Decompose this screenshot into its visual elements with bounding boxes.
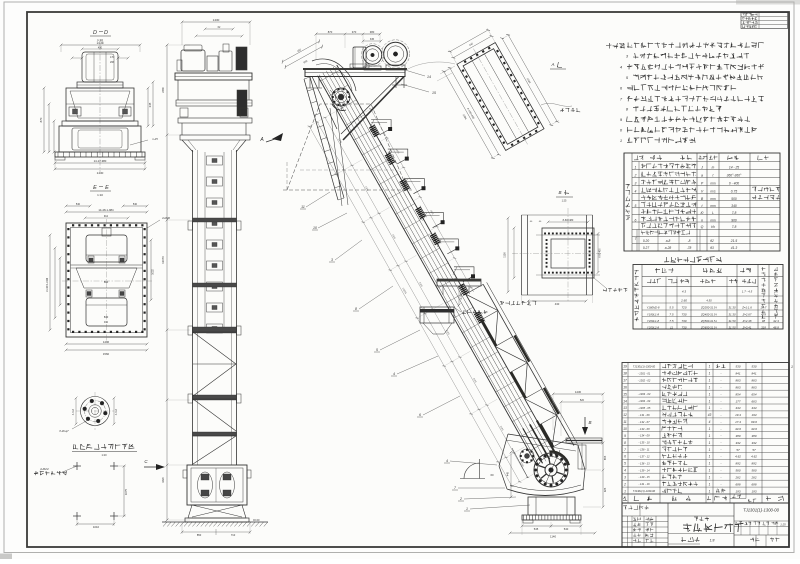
- svg-text:15: 15: [432, 91, 436, 95]
- svg-text:1: 1: [709, 441, 711, 445]
- svg-text:- 1305 - 05: - 1305 - 05: [638, 406, 651, 410]
- svg-text:- 135 - 10: - 135 - 10: [638, 441, 650, 445]
- svg-text:2.6: 2.6: [773, 306, 778, 310]
- svg-text:360°-360°: 360°-360°: [727, 174, 742, 178]
- svg-text:430: 430: [98, 47, 103, 50]
- svg-text:mm: mm: [710, 219, 716, 223]
- svg-text:1.7 - 4.5: 1.7 - 4.5: [742, 290, 753, 294]
- svg-text:-8: -8: [688, 239, 691, 243]
- svg-text:730: 730: [681, 319, 686, 323]
- svg-text:31.50: 31.50: [729, 325, 736, 329]
- svg-text:57: 57: [752, 448, 756, 452]
- svg-text:3.4: 3.4: [774, 313, 778, 317]
- svg-text:540: 540: [76, 203, 81, 206]
- svg-text:19.4: 19.4: [735, 413, 741, 417]
- svg-text:14: 14: [623, 399, 627, 403]
- svg-text:730: 730: [681, 325, 686, 329]
- svg-text:θ3: θ3: [710, 246, 714, 250]
- svg-text:4-414: 4-414: [115, 408, 118, 415]
- svg-text:10: 10: [623, 427, 627, 431]
- svg-text:840: 840: [104, 315, 109, 319]
- svg-text:- 1304 - 04: - 1304 - 04: [638, 399, 651, 403]
- svg-text:J: J: [700, 166, 703, 170]
- svg-text:E: E: [93, 185, 97, 191]
- svg-text:1560: 1560: [103, 352, 110, 356]
- svg-text:- 137 - 12: - 137 - 12: [638, 455, 650, 459]
- svg-text:t: t: [713, 174, 714, 178]
- svg-text:1430: 1430: [575, 390, 582, 394]
- svg-text:4-414: 4-414: [72, 408, 75, 415]
- svg-text:4-M20: 4-M20: [162, 216, 170, 220]
- svg-text:2390: 2390: [162, 87, 165, 93]
- svg-text:4: 4: [624, 469, 626, 473]
- svg-text:854: 854: [735, 392, 740, 396]
- svg-text:7: 7: [635, 237, 637, 241]
- svg-text:1:8: 1:8: [710, 539, 715, 543]
- svg-text:A: A: [259, 137, 264, 143]
- svg-text:19: 19: [623, 365, 627, 369]
- svg-text:434: 434: [735, 406, 740, 410]
- svg-text:- 131 - 06: - 131 - 06: [638, 413, 650, 417]
- svg-text:193: 193: [735, 489, 740, 493]
- svg-text:5.5: 5.5: [669, 306, 674, 310]
- svg-text:6: 6: [419, 413, 421, 417]
- svg-text:170: 170: [110, 56, 115, 59]
- svg-text:8-60=480: 8-60=480: [563, 219, 574, 222]
- svg-text:1150: 1150: [503, 252, 507, 258]
- svg-text:688: 688: [735, 482, 740, 486]
- svg-text:8: 8: [624, 441, 626, 445]
- svg-text:870: 870: [39, 117, 43, 122]
- svg-text:31.50: 31.50: [729, 319, 736, 323]
- svg-text:1: 1: [709, 392, 711, 396]
- svg-text:1140: 1140: [550, 535, 556, 539]
- svg-text:0.27: 0.27: [643, 246, 649, 250]
- svg-text:1620: 1620: [162, 477, 165, 483]
- svg-text:11: 11: [301, 205, 305, 209]
- svg-text:ZQ500-31.5-I: ZQ500-31.5-I: [700, 319, 717, 323]
- svg-text:6-80-400: 6-80-400: [600, 248, 602, 258]
- svg-text:31.30: 31.30: [729, 313, 736, 317]
- svg-text:5: 5: [635, 204, 637, 208]
- svg-text:4.50: 4.50: [706, 299, 712, 303]
- svg-text:688: 688: [751, 482, 756, 486]
- svg-text:- 134 - 09: - 134 - 09: [638, 434, 650, 438]
- svg-text:2.5: 2.5: [773, 290, 778, 294]
- svg-text:9: 9: [624, 434, 626, 438]
- svg-text:57: 57: [736, 448, 740, 452]
- svg-text:863: 863: [751, 386, 756, 390]
- svg-text:Z=3.41: Z=3.41: [742, 325, 752, 329]
- svg-text:1:10: 1:10: [97, 193, 103, 197]
- svg-text:655: 655: [603, 455, 607, 460]
- svg-text:2: 2: [623, 482, 626, 486]
- svg-text:D: D: [104, 30, 108, 36]
- svg-text:Y200L1-8: Y200L1-8: [647, 319, 660, 323]
- svg-text:540: 540: [133, 203, 138, 206]
- svg-text:n: n: [701, 219, 703, 223]
- svg-text:2: 2: [634, 174, 637, 178]
- svg-text:1010: 1010: [93, 525, 100, 529]
- svg-text:ZQ650-31.5-I: ZQ650-31.5-I: [700, 325, 717, 329]
- svg-text:7.8: 7.8: [732, 225, 737, 229]
- svg-text:14: 14: [427, 75, 431, 79]
- svg-text:A: A: [550, 62, 554, 67]
- svg-text:890: 890: [104, 280, 109, 284]
- svg-text:1: 1: [709, 469, 711, 473]
- svg-text:- 132 - 07: - 132 - 07: [638, 420, 650, 424]
- svg-text:a: a: [701, 174, 703, 178]
- svg-text:60: 60: [490, 473, 494, 477]
- svg-text:7.5: 7.5: [669, 313, 674, 317]
- svg-text:1:20: 1:20: [101, 453, 107, 457]
- svg-text:8-26-φ7: 8-26-φ7: [59, 429, 69, 433]
- svg-text:ZQ350-31.5-I: ZQ350-31.5-I: [700, 306, 717, 310]
- svg-text:- 138 - 13: - 138 - 13: [638, 461, 650, 465]
- svg-text:345: 345: [370, 38, 375, 41]
- svg-text:1430: 1430: [97, 171, 104, 175]
- svg-text:1: 1: [709, 455, 711, 459]
- svg-text:10: 10: [313, 226, 317, 230]
- svg-text:4-1200: 4-1200: [461, 292, 463, 300]
- svg-text:42.3: 42.3: [773, 319, 779, 323]
- svg-text:1496: 1496: [103, 340, 110, 344]
- svg-text:m: m: [712, 166, 715, 170]
- svg-text:1: 1: [709, 482, 711, 486]
- svg-text:193: 193: [751, 489, 756, 493]
- svg-text:- 1302 - 02: - 1302 - 02: [638, 378, 651, 382]
- svg-text:Z=2.48: Z=2.48: [742, 319, 752, 323]
- svg-text:5: 5: [624, 462, 626, 466]
- svg-text:Z=2.67: Z=2.67: [742, 313, 752, 317]
- svg-text:1: 1: [620, 138, 622, 143]
- svg-text:a-8: a-8: [666, 239, 671, 243]
- svg-text:17.4: 17.4: [735, 420, 741, 424]
- svg-text:318: 318: [761, 325, 766, 329]
- svg-text:194: 194: [751, 413, 756, 417]
- svg-text:12: 12: [623, 413, 627, 417]
- svg-text:14 - 25: 14 - 25: [729, 166, 739, 170]
- svg-text:4-M24: 4-M24: [40, 467, 49, 471]
- svg-text:1032: 1032: [152, 269, 155, 275]
- svg-text:Z=1:1.6: Z=1:1.6: [741, 306, 752, 310]
- svg-text:6: 6: [624, 455, 626, 459]
- svg-text:1: 1: [709, 475, 711, 479]
- svg-text:332: 332: [751, 441, 756, 445]
- svg-text:mm: mm: [710, 204, 716, 208]
- svg-text:663: 663: [751, 399, 756, 403]
- svg-text:41.3: 41.3: [731, 246, 738, 250]
- svg-text:1: 1: [709, 406, 711, 410]
- svg-text:710: 710: [231, 533, 236, 537]
- svg-text:445: 445: [507, 471, 510, 476]
- svg-text:870: 870: [328, 30, 333, 34]
- svg-text:- 139 - 14: - 139 - 14: [638, 468, 650, 472]
- svg-text:262: 262: [750, 475, 756, 479]
- svg-text:892: 892: [751, 462, 756, 466]
- svg-text:4: 4: [635, 190, 637, 194]
- svg-text:925: 925: [603, 487, 607, 492]
- svg-text:1: 1: [635, 166, 637, 170]
- svg-text:D: D: [93, 30, 97, 36]
- svg-text:530: 530: [751, 365, 756, 369]
- svg-text:863: 863: [735, 379, 740, 383]
- svg-text:479: 479: [761, 313, 766, 317]
- svg-text:380: 380: [370, 30, 375, 34]
- svg-text:L: L: [712, 211, 714, 215]
- svg-text:43.6: 43.6: [735, 427, 741, 431]
- svg-text:841: 841: [751, 372, 756, 376]
- svg-text:1:25: 1:25: [780, 522, 786, 526]
- svg-text:3: 3: [635, 182, 637, 186]
- svg-text:14-48.5-1038: 14-48.5-1038: [46, 277, 49, 292]
- svg-text:4.62: 4.62: [735, 455, 741, 459]
- svg-text:560: 560: [735, 469, 740, 473]
- svg-text:863: 863: [751, 379, 756, 383]
- svg-text:520: 520: [580, 399, 585, 402]
- svg-text:±0.00: ±0.00: [253, 518, 260, 522]
- svg-text:4: 4: [393, 372, 395, 376]
- svg-text:2.60: 2.60: [680, 299, 687, 303]
- svg-text:1: 1: [709, 386, 711, 390]
- svg-text:1: 1: [709, 434, 711, 438]
- svg-text:730: 730: [681, 313, 686, 317]
- svg-text:1075: 1075: [124, 488, 128, 495]
- svg-text:1: 1: [709, 448, 711, 452]
- svg-text:5: 5: [376, 348, 378, 352]
- svg-text:6: 6: [635, 219, 637, 223]
- svg-text:720: 720: [681, 306, 686, 310]
- svg-text:912: 912: [104, 321, 109, 324]
- svg-text:4: 4: [446, 459, 448, 463]
- svg-text:3: 3: [624, 475, 626, 479]
- svg-text:16: 16: [623, 386, 627, 390]
- svg-text:850: 850: [197, 533, 202, 537]
- svg-text:434: 434: [751, 406, 756, 410]
- svg-text:1: 1: [791, 365, 793, 369]
- svg-text:3: 3: [331, 258, 333, 262]
- svg-text:1:25: 1:25: [562, 200, 567, 203]
- svg-text:7: 7: [624, 448, 626, 452]
- svg-text:43: 43: [708, 413, 712, 417]
- svg-text:500: 500: [731, 197, 737, 201]
- svg-text:13: 13: [623, 406, 627, 410]
- svg-text:1430: 1430: [213, 18, 220, 22]
- svg-text:a-28: a-28: [665, 246, 672, 250]
- svg-text:t/h: t/h: [711, 225, 715, 229]
- svg-text:13070: 13070: [161, 256, 165, 264]
- svg-text:21.5: 21.5: [730, 239, 738, 243]
- svg-text:4: 4: [709, 420, 711, 424]
- svg-text:Y160M2-8: Y160M2-8: [647, 306, 660, 310]
- svg-text:654: 654: [751, 392, 756, 396]
- svg-text:1: 1: [709, 462, 711, 466]
- svg-text:17: 17: [623, 379, 627, 383]
- svg-text:380: 380: [751, 434, 756, 438]
- svg-text:- 133 - 08: - 133 - 08: [638, 427, 650, 431]
- svg-text:1: 1: [709, 489, 711, 493]
- svg-text:1: 1: [709, 365, 711, 369]
- svg-text:- 1303 - 03: - 1303 - 03: [638, 392, 651, 396]
- svg-text:31.30: 31.30: [729, 306, 736, 310]
- svg-text:Y180L1-8: Y180L1-8: [647, 313, 660, 317]
- svg-text:ZQ400-31.5-I: ZQ400-31.5-I: [700, 313, 717, 317]
- svg-text:48.8: 48.8: [773, 325, 779, 329]
- svg-text:- 141 - 16: - 141 - 16: [638, 482, 650, 486]
- svg-text:1: 1: [709, 372, 711, 376]
- svg-text:262: 262: [734, 475, 740, 479]
- svg-text:14-48-1-984: 14-48-1-984: [98, 208, 114, 212]
- svg-text:2: 2: [459, 497, 462, 501]
- svg-text:θ2: θ2: [710, 239, 714, 243]
- svg-text:- 136 - 11: - 136 - 11: [639, 448, 650, 452]
- svg-text:0.20: 0.20: [643, 239, 649, 243]
- svg-text:B: B: [588, 420, 591, 425]
- svg-text:370: 370: [352, 30, 357, 34]
- svg-text:0 - 400: 0 - 400: [729, 182, 739, 186]
- svg-text:8: 8: [355, 307, 357, 311]
- svg-text:-78: -78: [687, 246, 692, 250]
- svg-text:863: 863: [735, 386, 740, 390]
- svg-text:14-17-980: 14-17-980: [94, 159, 107, 163]
- svg-text:18: 18: [623, 372, 627, 376]
- svg-text:345: 345: [148, 102, 152, 107]
- svg-text:841: 841: [735, 372, 740, 376]
- svg-text:1: 1: [709, 427, 711, 431]
- svg-text:0.75: 0.75: [731, 190, 738, 194]
- svg-text:43.6: 43.6: [751, 427, 757, 431]
- svg-text:4.3: 4.3: [761, 290, 765, 294]
- svg-text:11: 11: [670, 325, 673, 329]
- svg-text:Q: Q: [701, 225, 704, 229]
- svg-text:E: E: [105, 185, 109, 191]
- svg-text:4.3: 4.3: [682, 290, 687, 294]
- svg-text:530: 530: [735, 365, 740, 369]
- svg-text:mm: mm: [710, 197, 716, 201]
- svg-text:- 1301 - 01: - 1301 - 01: [638, 371, 651, 375]
- svg-text:892: 892: [735, 462, 740, 466]
- svg-text:m/s: m/s: [710, 190, 716, 194]
- svg-text:332: 332: [735, 441, 740, 445]
- svg-text:B: B: [558, 190, 561, 195]
- svg-text:430: 430: [555, 302, 560, 306]
- svg-text:1: 1: [466, 507, 468, 511]
- svg-text:n-25: n-25: [152, 137, 158, 141]
- svg-text:98: 98: [762, 319, 766, 323]
- svg-text:mm: mm: [710, 182, 716, 186]
- svg-text:7.8: 7.8: [732, 211, 737, 215]
- svg-text:TJ1301(1)-1300-00: TJ1301(1)-1300-00: [633, 365, 656, 369]
- svg-text:560: 560: [751, 469, 756, 473]
- svg-text:540: 540: [564, 527, 569, 531]
- svg-text:TJ1301(1)-1300-00: TJ1301(1)-1300-00: [743, 508, 780, 513]
- svg-text:- 140 - 15: - 140 - 15: [638, 475, 650, 479]
- svg-text:7.5: 7.5: [669, 319, 674, 323]
- svg-text:1: 1: [709, 379, 711, 383]
- svg-text:177: 177: [735, 399, 740, 403]
- svg-text:900: 900: [731, 219, 737, 223]
- svg-text:11: 11: [623, 420, 627, 424]
- svg-text:15: 15: [623, 392, 627, 396]
- svg-text:69.6: 69.6: [751, 420, 757, 424]
- svg-text:i0: i0: [701, 211, 704, 215]
- svg-text:4.62: 4.62: [751, 455, 757, 459]
- svg-text:340: 340: [731, 204, 737, 208]
- svg-text:545: 545: [534, 527, 539, 531]
- svg-text:Y200L2-8: Y200L2-8: [647, 325, 660, 329]
- svg-text:912: 912: [104, 215, 109, 218]
- svg-text:28.7: 28.7: [760, 306, 767, 310]
- svg-text:TJ1301(1)-1340-00: TJ1301(1)-1340-00: [633, 489, 656, 493]
- svg-text:1: 1: [624, 489, 626, 493]
- svg-text:1: 1: [709, 399, 711, 403]
- svg-text:266: 266: [110, 61, 115, 64]
- svg-text:380: 380: [735, 434, 740, 438]
